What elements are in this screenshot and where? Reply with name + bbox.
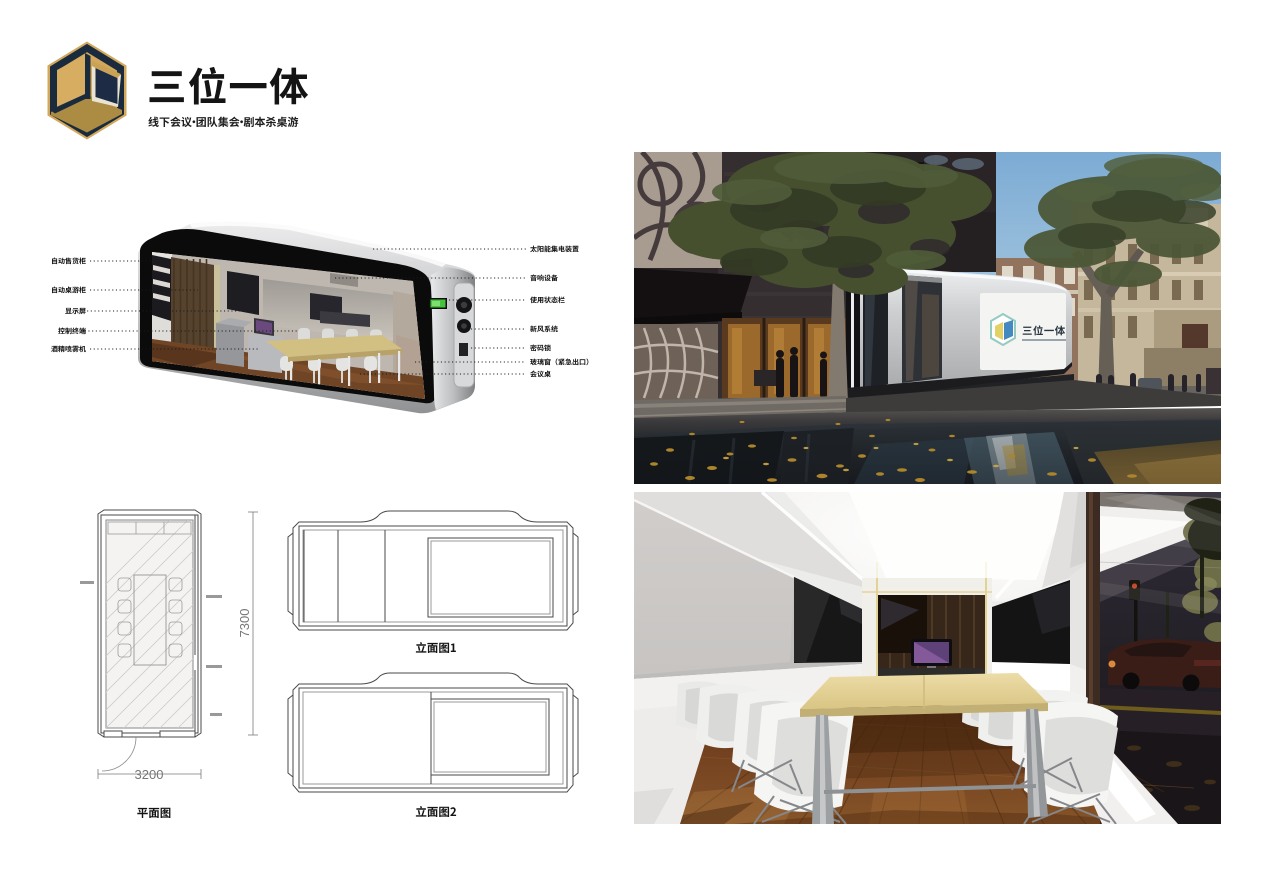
svg-text:7300: 7300 (237, 609, 252, 638)
svg-text:3200: 3200 (135, 767, 164, 782)
